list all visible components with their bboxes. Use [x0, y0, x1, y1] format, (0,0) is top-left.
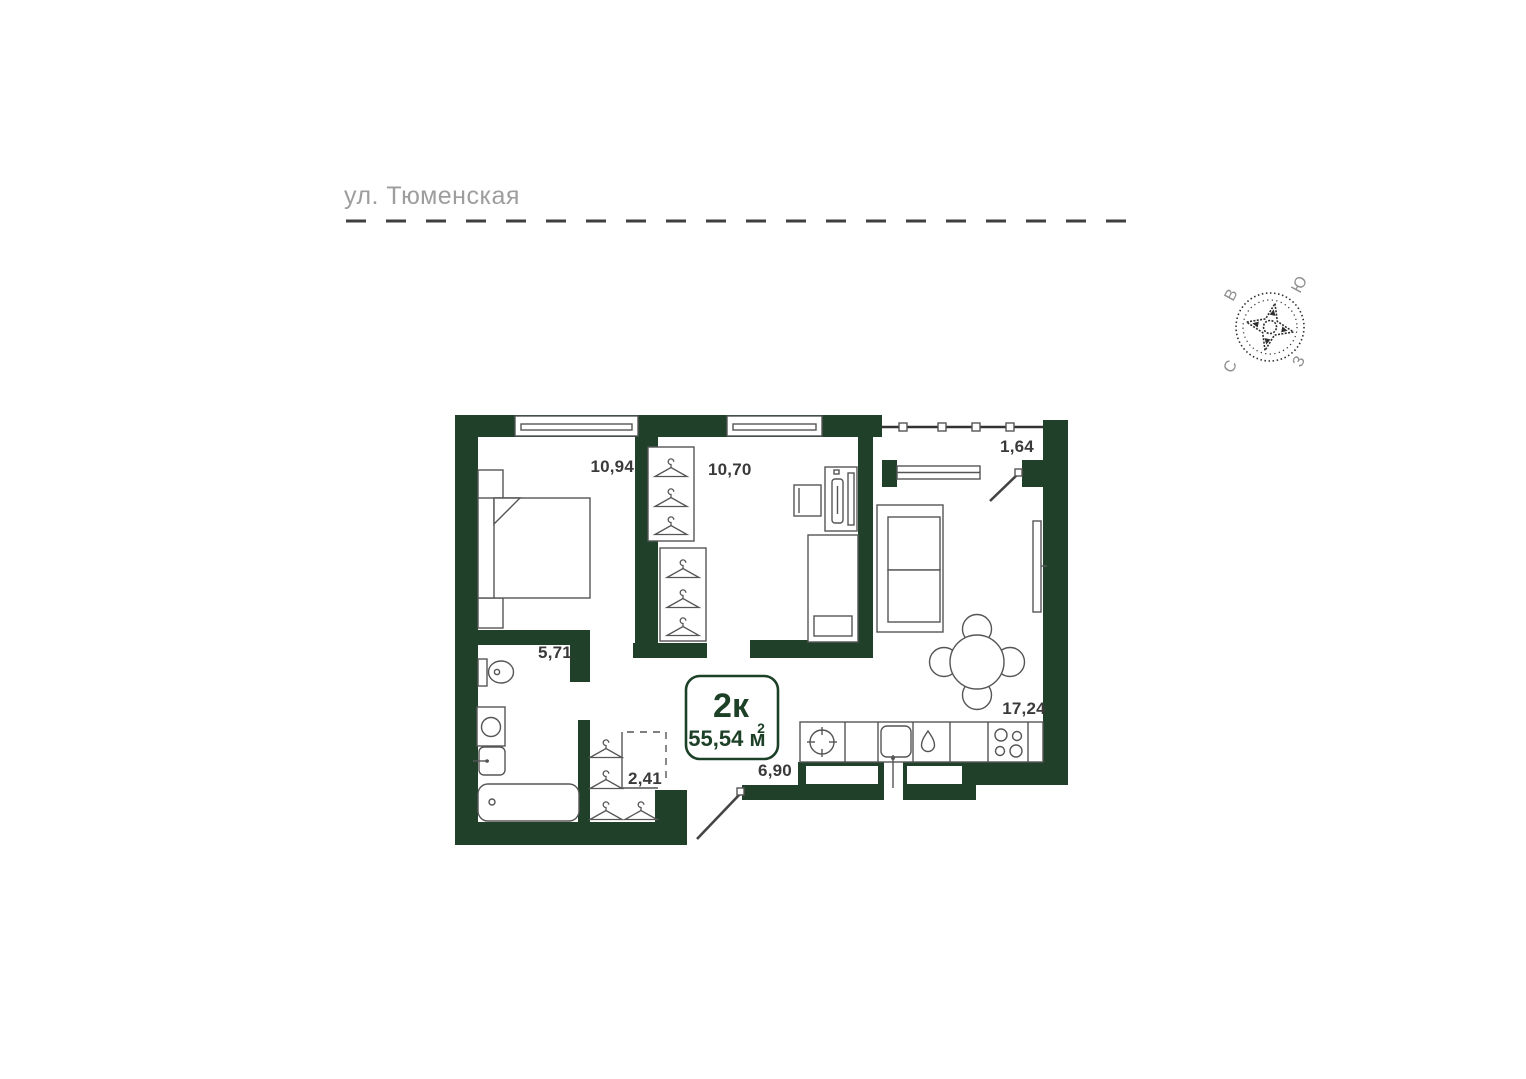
window-bedroom-2 — [727, 416, 822, 436]
bathroom-wardrobe-wall — [578, 720, 590, 822]
badge-area-value: 55,54 м — [688, 726, 765, 751]
apartment-badge: 2к 55,54 м 2 — [686, 676, 778, 759]
desk — [825, 467, 857, 531]
bathroom-washing-machine — [477, 707, 505, 746]
single-bed — [808, 535, 858, 642]
balcony-railing — [882, 423, 1043, 431]
bathroom-fixtures — [473, 659, 579, 821]
left-wall — [455, 415, 478, 845]
entrance-door — [697, 788, 744, 839]
bedroom-1-bottom-wall — [633, 643, 707, 658]
compass-star-icon — [1242, 299, 1299, 356]
compass-letter-south: Ю — [1289, 274, 1312, 296]
bathtub — [478, 784, 579, 821]
toilet-icon — [478, 659, 514, 686]
nightstand-2 — [478, 598, 503, 628]
bottom-left-wall — [455, 822, 687, 845]
double-bed — [478, 498, 590, 598]
area-label-bedroom-2: 10,70 — [708, 460, 752, 479]
area-label-bedroom-1: 10,94 — [590, 457, 634, 476]
area-label-wardrobe: 2,41 — [628, 769, 662, 788]
area-label-hallway: 6,90 — [758, 761, 792, 780]
bedroom-2-furniture — [794, 467, 858, 642]
window-bedroom-1 — [515, 416, 638, 436]
compass-letter-west: З — [1290, 353, 1310, 370]
balcony-left-jamb — [882, 460, 897, 487]
entrance-left-jamb — [655, 790, 687, 845]
floor-plan-page: ул. Тюменская В Ю С З — [0, 0, 1526, 1079]
vent-opening-2 — [907, 766, 962, 784]
area-label-bathroom: 5,71 — [538, 643, 572, 662]
bathroom-door-jamb — [570, 630, 590, 682]
area-label-living-kitchen: 17,24 — [1002, 699, 1046, 718]
closet-hangers-2 — [660, 548, 706, 641]
desk-lamp-icon — [834, 470, 839, 474]
balcony-door — [990, 469, 1022, 501]
right-wall — [1043, 420, 1068, 785]
balcony-window — [897, 466, 980, 479]
vent-opening-1 — [806, 766, 878, 784]
desk-chair — [794, 485, 821, 516]
dining-table-with-chairs — [930, 615, 1025, 710]
closet-hangers-1 — [648, 447, 694, 541]
bedroom-2-living-wall — [858, 437, 873, 645]
badge-area-superscript: 2 — [757, 720, 765, 736]
street-label: ул. Тюменская — [344, 182, 520, 210]
compass-letter-east: В — [1222, 286, 1242, 303]
compass-letter-north: С — [1221, 358, 1241, 376]
sofa — [877, 505, 943, 632]
nightstand-1 — [478, 470, 503, 500]
compass-rose: В Ю С З — [1221, 274, 1312, 376]
area-label-balcony: 1,64 — [1000, 437, 1034, 456]
badge-rooms-count: 2к — [713, 687, 750, 725]
bedroom-2-bottom-wall — [750, 640, 873, 658]
balcony-right-jamb — [1022, 460, 1043, 487]
hallway-bottom-wall — [742, 785, 976, 800]
